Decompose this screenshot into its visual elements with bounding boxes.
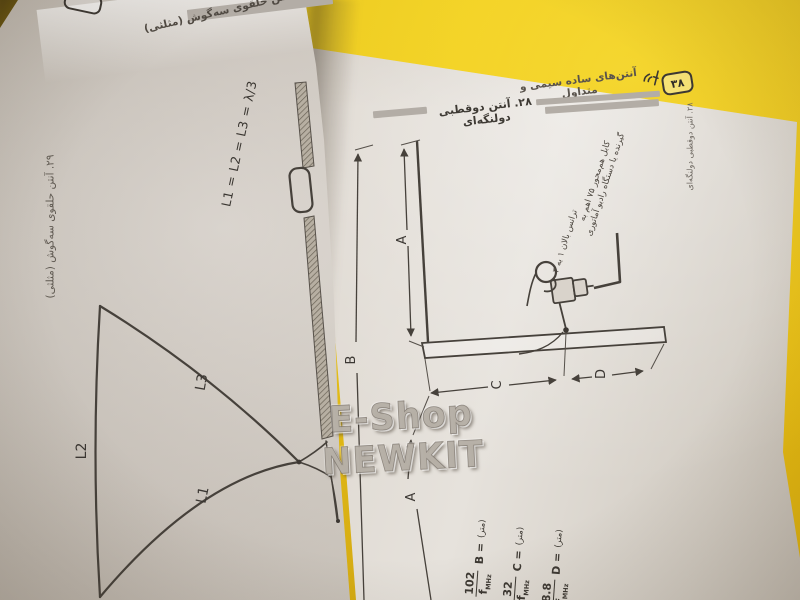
dipole-figure: A B C D A: [344, 140, 666, 600]
dim-d-line-left: [572, 377, 592, 379]
formula-b: (متر) B = 102fMHz: [463, 506, 498, 600]
label-L3: L3: [193, 373, 212, 392]
label-dim-b: B: [344, 356, 359, 365]
formula-b-unit: (متر): [476, 519, 487, 538]
photo-scene: L2 L3 L1: [0, 0, 800, 600]
formula-d-lhs: D =: [550, 552, 565, 575]
feedline-drop-2: [331, 477, 338, 520]
label-dim-d: D: [594, 369, 609, 379]
formula-d-unit: (متر): [553, 529, 564, 548]
label-dim-c: C: [490, 380, 505, 389]
dim-c-line-right: [509, 380, 556, 385]
dim-d-line-right: [612, 371, 643, 375]
label-dim-a-upper: A: [395, 235, 410, 244]
mast-insulator-loop: [289, 167, 313, 213]
antenna-signal-icon: [641, 69, 663, 89]
formula-c-fraction: 32fMHz: [502, 575, 531, 600]
coax-cable-line: [594, 233, 620, 288]
delta-loop-figure: L2 L3 L1: [74, 82, 340, 597]
left-side-tab: ۲۹. آنتن حلقوی سه‌گوش (مثلثی): [45, 77, 60, 377]
formula-c-unit: (متر): [514, 527, 525, 546]
label-L1: L1: [194, 485, 213, 505]
dim-b-line-1: [356, 154, 358, 342]
feedline-end-dot: [336, 519, 340, 523]
label-L2: L2: [74, 443, 90, 460]
right-side-tab: ۲۸. آنتن دوقطبی دولنگه‌ای: [686, 87, 699, 207]
formula-c-lhs: C =: [511, 550, 525, 572]
wire-element: [417, 141, 428, 342]
formula-c-denominator: fMHz: [514, 576, 531, 600]
feed-junction-dot: [563, 327, 569, 333]
formula-b-lhs: B =: [473, 542, 487, 564]
formula-d-denominator: fMHz: [552, 580, 569, 600]
shop-watermark: E-Shop NEWKIT: [252, 389, 552, 488]
dim-a-upper-line-2: [408, 246, 411, 336]
balun-feed-wire: [559, 301, 566, 329]
dim-a-lower-line-2: [417, 509, 431, 600]
formula-d-fraction: 8.8fMHz: [540, 579, 569, 600]
label-dim-a-lower: A: [404, 492, 419, 501]
coax-loop-tail-2: [527, 273, 536, 306]
mast-upper-segment: [295, 82, 314, 168]
dim-a-upper-line-1: [404, 149, 407, 230]
tube-element: [422, 327, 666, 358]
loop-side-L2: [96, 306, 101, 597]
formula-b-denominator: fMHz: [475, 570, 492, 598]
formula-b-fraction: 102fMHz: [463, 568, 493, 599]
